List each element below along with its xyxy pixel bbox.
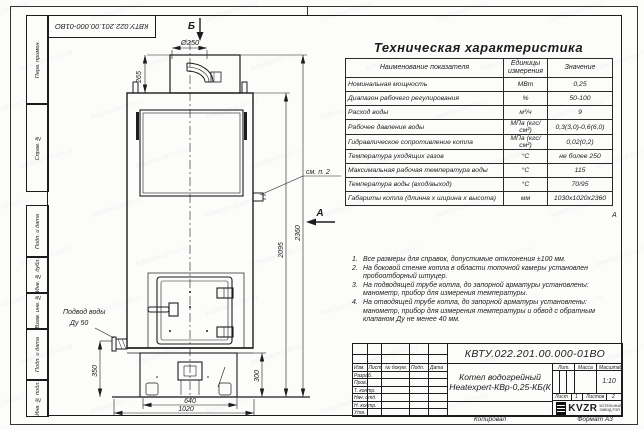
product-name-line1: Котел водогрейный [459,372,541,382]
spec-row: Температура воды (вход/выход)°С70/95 [346,178,613,192]
upper-panel [136,110,247,196]
frame-label: Подп. и дата [35,337,41,372]
dim-text-1020: 1020 [178,406,194,413]
spec-header-row: Наименование показателя Единицы измерени… [346,59,613,78]
spec-cell-unit: °С [504,150,548,164]
spec-cell-value: 1030х1020х2360 [548,192,613,206]
spec-cell-unit: °С [504,164,548,178]
company-logo: KVZR КОТЕЛЬНЫЙ ЗАВОД РЭП [552,400,622,416]
note-text: На боковой стенке котла в области топочн… [363,265,612,282]
spec-row: Номинальная мощностьМВт0,25 [346,78,613,92]
dim-text-2095: 2095 [278,242,285,259]
tb-col-list: Лист [369,365,382,371]
chimney-elbow [187,63,221,82]
dim-chimney-height [145,55,170,93]
spec-cell-value: 0,25 [548,78,613,92]
title-block: Изм. Лист № докум. Подп. Дата Разраб. Пр… [352,343,623,417]
callout-note2-leader [260,176,341,195]
footer-format: Формат А3 [555,416,635,423]
fold-mark [307,6,308,15]
spec-table-title: Техническая характеристика [345,40,612,55]
zone-marker: А [612,212,617,219]
tb-mass-header: Масса [578,365,593,371]
door-handle-bar [148,307,169,312]
door-bolts [169,291,208,332]
scale-value: 1:10 [596,370,622,393]
tb-row-prov: Пров. [354,380,367,386]
furnace-door [148,273,244,348]
door-handle-plate [169,303,178,316]
spec-cell-name: Гидравлическое сопротивление котла [346,135,504,150]
spec-row: Расход водым³/ч9 [346,106,613,120]
view-b-label: Б [188,21,195,32]
spec-col-unit: Единицы измерения [504,59,548,78]
drawing-sheet: kotelzavod-rzn.rukotelzavod-rzn.rukotelz… [0,0,644,430]
note-text: На подводящей трубе котла, до запорной а… [363,282,612,299]
dim-chimney-diameter [172,48,207,59]
frame-cell-sprav-no: Справ. № [26,103,49,192]
spec-cell-value: 0,3(3,0)-0,6(6,0) [548,120,613,135]
product-name-line2: Heatexpert-КВр-0,25-КБ(К [449,382,551,392]
frame-label: Перв. примен. [35,41,41,78]
spec-col-name: Наименование показателя [346,59,504,78]
doc-number: КВТУ.022.201.00.000-01ВО [448,344,622,363]
footer-copy: Копировал [430,416,550,423]
spec-cell-name: Номинальная мощность [346,78,504,92]
spec-cell-unit: мм [504,192,548,206]
tb-row-utv: Утв. [354,410,365,416]
water-inlet-label-2: Ду 50 [69,320,88,327]
spec-row: Диапазон рабочего регулирования%50-100 [346,92,613,106]
dim-text-d250: Ø250 [180,38,200,47]
spec-cell-value: 70/95 [548,178,613,192]
tb-row-nachotd: Нач. отд. [354,395,376,401]
dim-text-350: 350 [92,365,99,377]
frame-label: Инв. № дубл. [35,258,41,292]
view-a-label: А [315,208,323,219]
note-item: 4.На отводящей трубе котла, до запорной … [352,299,612,325]
spec-cell-value: 0,02(0,2) [548,135,613,150]
spec-cell-value: 9 [548,106,613,120]
door-hinge-top [217,288,233,298]
kvzr-caption-line2: ЗАВОД РЭП [599,408,622,412]
note-number: 2. [352,265,363,282]
spec-cell-name: Рабочее давление воды [346,120,504,135]
frame-label: Справ. № [35,135,41,160]
tb-row-nkontr: Н. контр. [354,403,377,409]
base [140,353,237,397]
tb-row-razrab: Разраб. [354,373,372,379]
kvzr-logo-word: KVZR [568,403,597,414]
sampling-fitting [253,193,266,201]
boiler-drawing: Б Ø250 [48,15,348,415]
tb-col-dokum: № докум. [385,365,407,371]
spec-cell-unit: МПа (кгс/см²) [504,120,548,135]
kvzr-logo-icon [556,402,566,415]
spec-cell-unit: МВт [504,78,548,92]
frame-cell-inv-dubl: Инв. № дубл. [26,256,49,294]
spec-table: Наименование показателя Единицы измерени… [345,58,613,206]
frame-cell-perv-primen: Перв. примен. [26,15,49,105]
spec-cell-name: Температура воды (вход/выход) [346,178,504,192]
dim-text-640: 640 [184,398,196,405]
frame-cell-vzam-inv: Взам. инв. № [26,292,49,330]
spec-cell-unit: °С [504,178,548,192]
spec-cell-name: Температура уходящих газов [346,150,504,164]
frame-cell-podp-data-2: Подп. и дата [26,328,49,381]
spec-cell-value: 115 [548,164,613,178]
callout-note2-text: см. п. 2 [306,169,330,176]
tb-col-data: Дата [430,365,443,371]
spec-row: Гидравлическое сопротивление котлаМПа (к… [346,135,613,150]
tb-col-podp: Подп. [411,365,424,371]
product-name: Котел водогрейный Heatexpert-КВр-0,25-КБ… [448,364,552,400]
frame-cell-inv-podl: Инв. № подл. [26,379,49,417]
spec-cell-unit: МПа (кгс/см²) [504,135,548,150]
spec-cell-name: Диапазон рабочего регулирования [346,92,504,106]
tb-col-izm: Изм. [354,365,365,371]
notes-list: 1.Все размеры для справок, допустимые от… [352,256,612,325]
note-text: На отводящей трубе котла, до запорной ар… [363,299,612,325]
spec-cell-name: Максимальная рабочая температура воды [346,164,504,178]
kvzr-logo-caption: КОТЕЛЬНЫЙ ЗАВОД РЭП [599,404,622,412]
spec-row: Температура уходящих газов°Сне более 250 [346,150,613,164]
spec-cell-unit: % [504,92,548,106]
dim-text-2360: 2360 [295,225,302,242]
dim-inlet-height [100,341,112,397]
frame-label: Подп. и дата [35,214,41,249]
frame-cell-podp-data-1: Подп. и дата [26,205,49,258]
spec-col-value: Значение [548,59,613,78]
spec-cell-value: 50-100 [548,92,613,106]
spec-cell-value: не более 250 [548,150,613,164]
view-a-arrow [306,219,335,226]
dim-text-300: 300 [254,370,261,382]
note-number: 1. [352,256,363,265]
frame-label: Инв. № подл. [35,381,41,416]
tb-row-tkontr: Т. контр. [354,388,376,394]
spec-cell-unit: м³/ч [504,106,548,120]
tb-lit-header: Лит. [558,365,570,371]
door-hinge-bottom [217,327,233,337]
spec-cell-name: Расход воды [346,106,504,120]
water-inlet-stub [112,337,127,351]
frame-label: Взам. инв. № [35,294,41,329]
spec-row: Габариты котла (длинна х ширина х высота… [346,192,613,206]
chimney-box [170,55,240,93]
note-item: 3.На подводящей трубе котла, до запорной… [352,282,612,299]
water-inlet-label-1: Подвод воды [63,308,106,316]
note-number: 3. [352,282,363,299]
note-text: Все размеры для справок, допустимые откл… [363,256,612,265]
note-number: 4. [352,299,363,325]
spec-row: Максимальная рабочая температура воды°С1… [346,164,613,178]
spec-cell-name: Габариты котла (длинна х ширина х высота… [346,192,504,206]
note-item: 2.На боковой стенке котла в области топо… [352,265,612,282]
spec-row: Рабочее давление водыМПа (кгс/см²)0,3(3,… [346,120,613,135]
note-item: 1.Все размеры для справок, допустимые от… [352,256,612,265]
water-inlet-leader [95,328,114,338]
